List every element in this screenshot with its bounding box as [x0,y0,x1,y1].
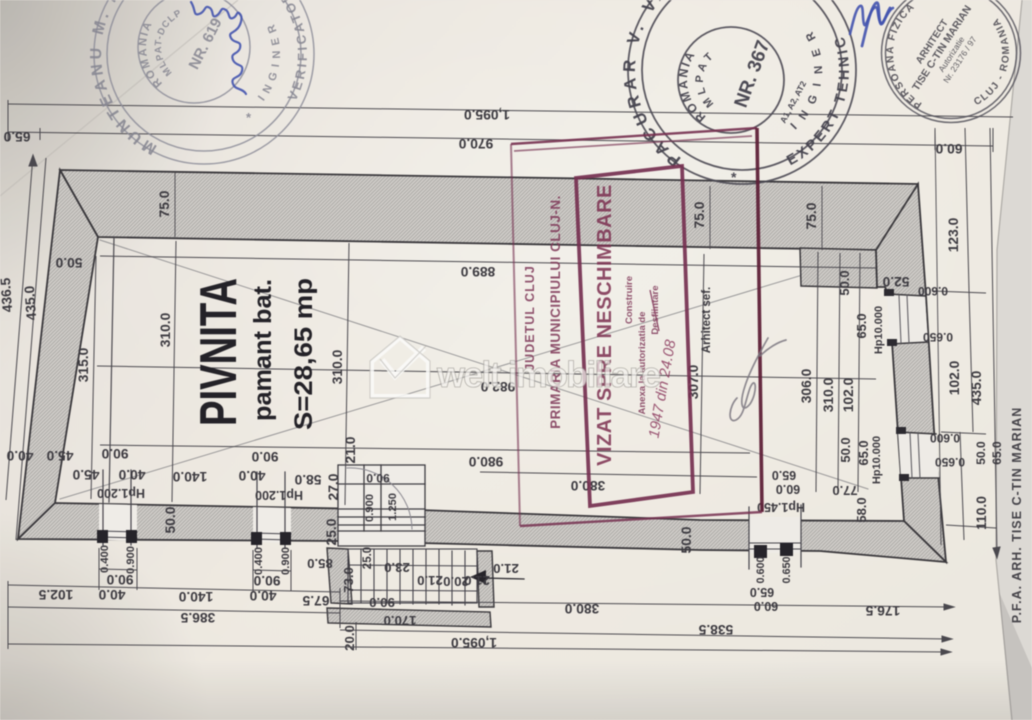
svg-text:58.0: 58.0 [854,497,869,522]
svg-text:140.0: 140.0 [178,589,213,604]
svg-text:50.0: 50.0 [679,526,694,553]
svg-text:65.0: 65.0 [3,129,30,144]
svg-text:436.5: 436.5 [0,277,15,313]
svg-text:85.0: 85.0 [307,556,333,571]
svg-text:176.5: 176.5 [865,603,900,618]
svg-text:65.0: 65.0 [854,313,869,338]
svg-text:73.0: 73.0 [341,567,356,593]
svg-text:538.5: 538.5 [698,622,733,637]
svg-text:40.0: 40.0 [98,587,125,602]
svg-text:50.0: 50.0 [837,270,852,295]
svg-text:21.0: 21.0 [493,561,519,576]
svg-text:90.0: 90.0 [366,471,390,485]
svg-text:102.5: 102.5 [38,587,73,602]
svg-text:21.0: 21.0 [343,436,358,463]
svg-text:50.0: 50.0 [838,437,853,462]
svg-text:23.0: 23.0 [384,560,410,575]
svg-text:40.0: 40.0 [118,467,145,482]
svg-text:Hp10.000: Hp10.000 [873,306,885,354]
svg-text:65.0: 65.0 [990,441,1004,465]
svg-text:90.0: 90.0 [369,595,395,610]
svg-text:435.0: 435.0 [969,370,984,405]
svg-text:170.0: 170.0 [383,613,416,628]
svg-text:1.250: 1.250 [387,493,399,521]
svg-text:Hp1.200: Hp1.200 [97,486,145,500]
svg-text:1,095.0: 1,095.0 [451,635,497,650]
svg-text:60.0: 60.0 [754,599,778,613]
svg-text:970.0: 970.0 [458,136,493,151]
svg-text:50.0: 50.0 [974,441,988,465]
svg-text:welt imobiliare: welt imobiliare [436,354,661,395]
svg-text:0.650: 0.650 [923,330,953,344]
svg-text:45.0: 45.0 [46,448,73,463]
svg-text:21.0: 21.0 [464,573,490,588]
svg-text:0.650: 0.650 [935,455,965,469]
svg-text:75.0: 75.0 [157,190,172,217]
svg-text:123.0: 123.0 [946,217,961,252]
svg-text:60.0: 60.0 [935,141,962,156]
svg-text:386.5: 386.5 [180,610,215,625]
svg-text:0.400: 0.400 [253,547,265,575]
svg-text:25.0: 25.0 [362,547,374,569]
svg-text:pamant bat.: pamant bat. [249,279,277,421]
svg-text:315.0: 315.0 [76,347,91,382]
svg-text:0.600: 0.600 [918,284,948,298]
svg-text:310.0: 310.0 [330,349,345,384]
svg-text:889.0: 889.0 [460,264,495,279]
svg-text:Construire: Construire [624,276,635,324]
svg-text:310.0: 310.0 [158,312,173,347]
svg-text:435.0: 435.0 [22,285,39,321]
svg-text:140.0: 140.0 [172,469,207,484]
svg-text:45.0: 45.0 [72,467,99,482]
svg-text:60.0: 60.0 [776,482,800,496]
svg-text:90.0: 90.0 [101,446,128,461]
svg-text:306.0: 306.0 [799,368,814,403]
svg-text:Hp1.200: Hp1.200 [255,488,303,502]
svg-text:VIZAT SPRE NESCHIMBARE: VIZAT SPRE NESCHIMBARE [594,184,616,466]
svg-text:380.0: 380.0 [564,601,599,616]
svg-text:0.900: 0.900 [364,494,376,522]
svg-text:PIVNITA: PIVNITA [190,278,248,426]
svg-text:1,095.0: 1,095.0 [464,107,510,122]
svg-text:21.0: 21.0 [417,573,443,588]
svg-text:40.0: 40.0 [249,588,276,603]
svg-text:102.0: 102.0 [841,377,856,412]
svg-text:P.F.A. ARH. TISE C-TIN MARIAN: P.F.A. ARH. TISE C-TIN MARIAN [1010,407,1024,624]
svg-text:110.0: 110.0 [974,496,989,530]
svg-text:27.0: 27.0 [326,473,341,500]
svg-text:40.0: 40.0 [238,468,265,483]
svg-text:Arhitect sef.: Arhitect sef. [701,287,713,353]
svg-text:67.5: 67.5 [302,593,329,608]
svg-text:0.600: 0.600 [755,556,767,583]
svg-text:90.0: 90.0 [251,449,278,464]
svg-text:0.600: 0.600 [930,431,960,445]
svg-text:40.0: 40.0 [6,448,33,463]
svg-text:*: * [731,169,737,185]
svg-text:Desfiintare: Desfiintare [650,285,661,334]
svg-text:52.0: 52.0 [882,274,909,289]
svg-text:Hp10.000: Hp10.000 [871,436,883,484]
svg-text:0.650: 0.650 [781,556,793,583]
svg-text:50.0: 50.0 [163,506,178,533]
svg-text:77.0: 77.0 [832,483,857,498]
svg-text:25.0: 25.0 [324,518,339,545]
svg-text:980.0: 980.0 [468,454,503,469]
svg-text:S=28,65 mp: S=28,65 mp [290,278,318,430]
svg-text:Hp1.450: Hp1.450 [757,500,805,514]
svg-text:65.0: 65.0 [772,468,796,482]
svg-text:102.0: 102.0 [947,360,962,395]
svg-text:65.0: 65.0 [856,440,871,465]
svg-text:65.0: 65.0 [750,585,774,599]
svg-text:90.0: 90.0 [106,572,133,587]
svg-text:75.0: 75.0 [804,202,819,229]
svg-text:75.0: 75.0 [692,201,707,228]
svg-text:50.0: 50.0 [55,255,82,270]
svg-text:58.0: 58.0 [294,472,321,487]
svg-text:310.0: 310.0 [821,377,836,412]
svg-text:90.0: 90.0 [253,573,280,588]
